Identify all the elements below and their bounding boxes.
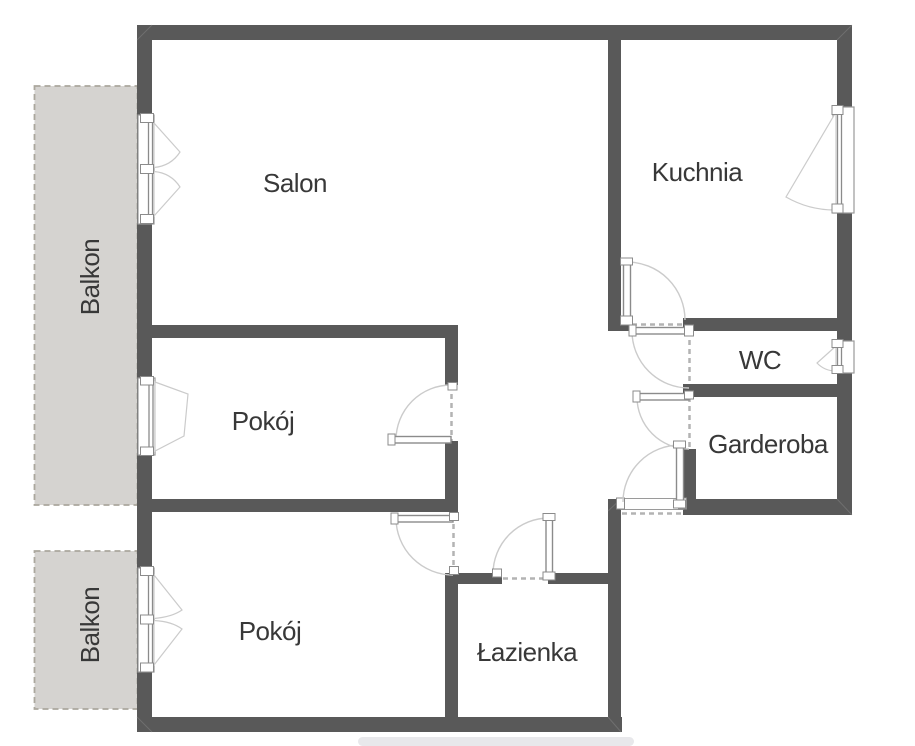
pokoj-bottom-balcony-door [138,567,182,673]
kitchen-door [621,258,686,325]
lazienka-door [493,514,556,581]
garderoba-door [633,391,694,449]
wall-pokoj-middle-right-upper [445,325,458,385]
pokoj-bottom-balcony-door-swing-upper [154,575,182,619]
wall-lazienka-right [608,499,621,732]
wall-pokoj-separator [152,499,458,512]
room-label-garderoba: Garderoba [708,429,829,459]
wall-kitchen-bottom [683,318,852,331]
floor-plan-canvas: Salon Kuchnia WC Garderoba Pokój Pokój Ł… [0,0,915,746]
room-label-pokoj-middle: Pokój [232,406,295,436]
room-label-wc: WC [739,345,781,375]
room-label-balkon-bottom: Balkon [75,587,105,664]
wall-salon-bottom [152,325,458,338]
pokoj-bottom-door [391,513,459,576]
pokoj-middle-window-swing [155,382,188,451]
wall-lazienka-left [445,573,458,732]
wc-door [629,325,694,388]
kitchen-window-swing [786,112,836,210]
pokoj-middle-window [138,377,188,456]
bottom-wall-shadow [358,737,634,746]
wall-outer-bottom [137,717,622,732]
kitchen-window [786,106,854,214]
room-label-balkon-top: Balkon [75,239,105,316]
salon-balcony-door [138,114,180,225]
floor-plan-page: Salon Kuchnia WC Garderoba Pokój Pokój Ł… [0,0,915,746]
wall-outer-right [837,25,852,515]
wall-kitchen-left [608,40,621,331]
doors [388,258,694,580]
entrance-door [623,441,686,508]
wc-window [817,340,854,374]
wall-garderoba-bottom [683,499,852,515]
salon-balcony-door-swing-lower [154,172,180,217]
room-label-kuchnia: Kuchnia [652,157,743,187]
room-label-pokoj-bottom: Pokój [239,616,302,646]
pokoj-middle-door [388,383,457,446]
wall-wc-garderoba-separator [683,384,837,397]
pokoj-bottom-balcony-door-swing-lower [154,621,182,666]
wall-hall-column [683,449,696,501]
salon-balcony-door-swing-upper [154,123,180,168]
wall-outer-top [137,25,852,40]
room-label-lazienka: Łazienka [477,637,578,667]
room-label-salon: Salon [263,168,327,198]
wall-lazienka-top-right [548,573,608,584]
